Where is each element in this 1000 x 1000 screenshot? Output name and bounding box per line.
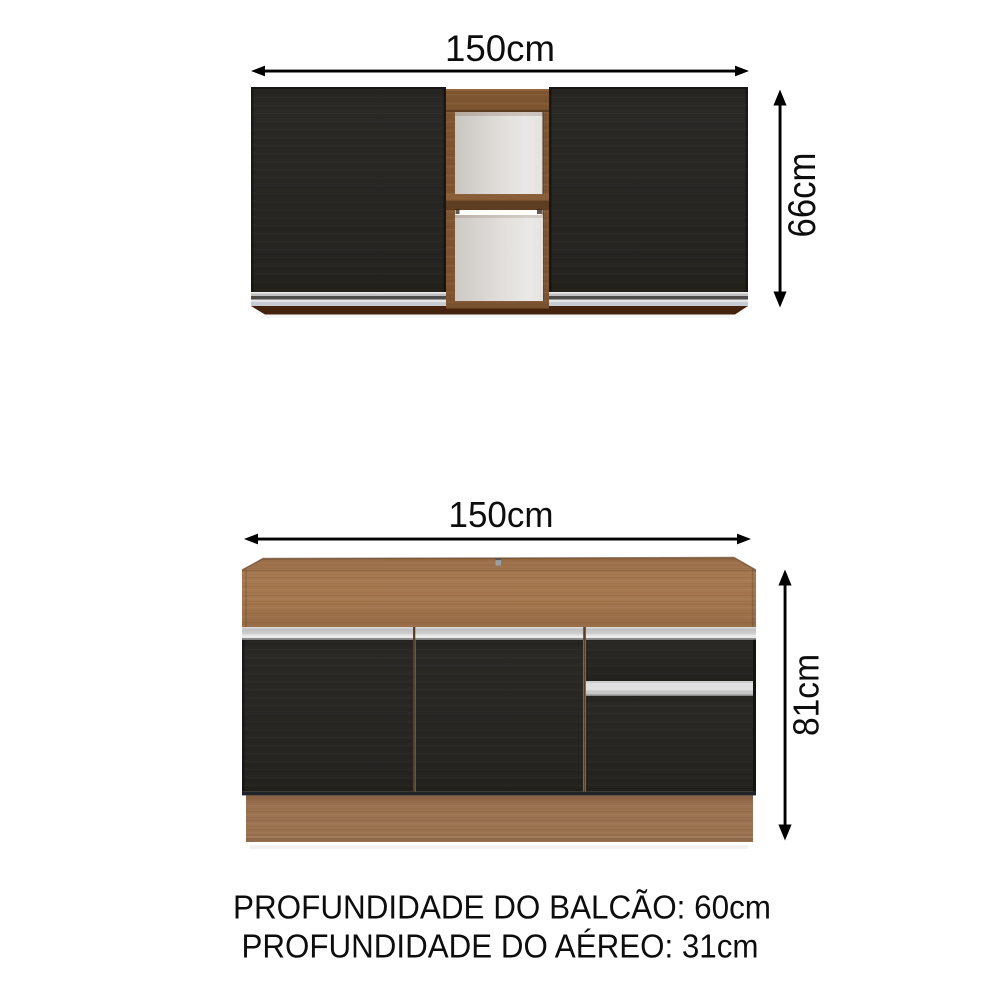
- svg-text:150cm: 150cm: [445, 28, 555, 69]
- svg-text:150cm: 150cm: [449, 494, 554, 535]
- svg-text:PROFUNDIDADE DO AÉREO: 31cm: PROFUNDIDADE DO AÉREO: 31cm: [242, 928, 759, 965]
- svg-text:66cm: 66cm: [781, 153, 824, 238]
- svg-text:PROFUNDIDADE DO BALCÃO: 60cm: PROFUNDIDADE DO BALCÃO: 60cm: [233, 889, 771, 926]
- svg-text:81cm: 81cm: [786, 654, 827, 736]
